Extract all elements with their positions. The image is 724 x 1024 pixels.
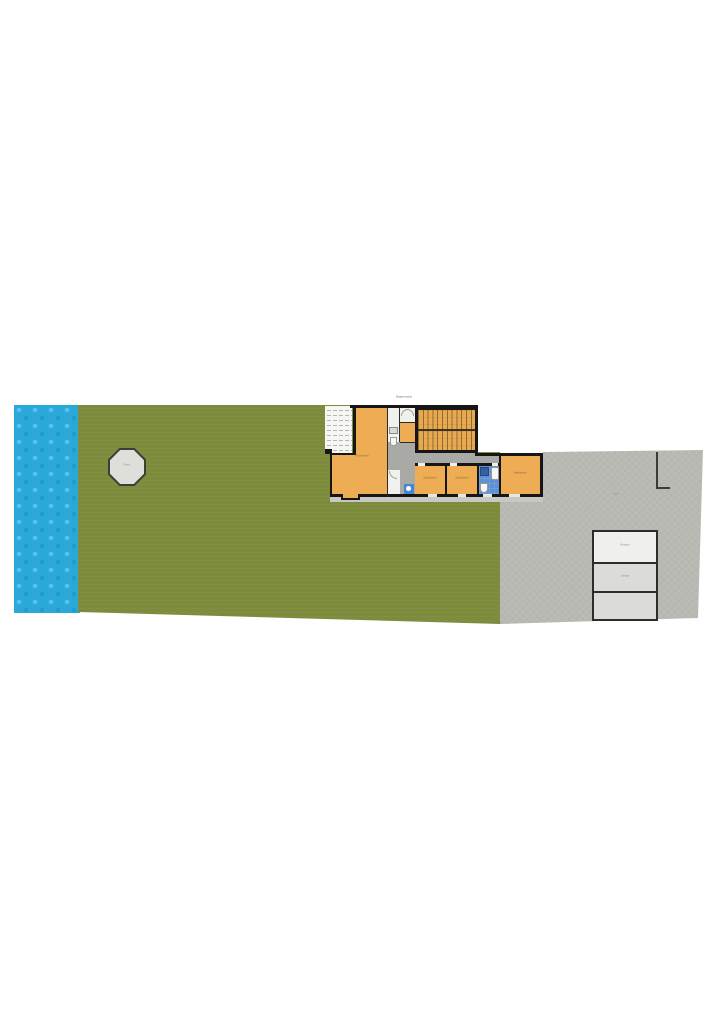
walkway bbox=[330, 497, 543, 502]
toilet-icon bbox=[390, 437, 397, 446]
window-bathroom bbox=[483, 494, 492, 497]
bath-toilet-icon bbox=[480, 483, 488, 493]
outbuilding-room-3 bbox=[594, 593, 656, 619]
plan-title-label: Begane grond bbox=[391, 395, 416, 398]
wall-bed1-bed2 bbox=[445, 466, 447, 494]
patio-tiles bbox=[325, 406, 352, 453]
veranda-band-top bbox=[418, 408, 475, 410]
living-room-label: Woonkamer bbox=[349, 454, 374, 457]
fence-line-vertical bbox=[656, 452, 658, 489]
veranda-band-middle bbox=[418, 429, 475, 431]
shower-icon bbox=[480, 467, 489, 476]
door-gap-bathroom bbox=[492, 463, 498, 466]
fence-line-horizontal bbox=[656, 487, 670, 489]
wall-living-corridor bbox=[387, 408, 388, 497]
washbasin-icon bbox=[389, 427, 398, 434]
wall-right-outer bbox=[540, 453, 543, 497]
wall-kitchen-top bbox=[400, 422, 415, 423]
water-area bbox=[14, 405, 80, 613]
bedroom-1 bbox=[415, 466, 445, 494]
site-plan: Begane grond Woonkamer Slaapkamer Slaapk… bbox=[0, 0, 724, 1024]
bathtub-icon bbox=[491, 467, 499, 480]
window-bedroom1 bbox=[428, 494, 437, 497]
bedroom-3 bbox=[501, 456, 540, 494]
bedroom3-label: Slaapkamer bbox=[507, 471, 532, 474]
outbuilding-room-1 bbox=[594, 532, 656, 562]
wall-kitchen-bottom bbox=[400, 442, 415, 443]
wall-veranda-right bbox=[475, 408, 478, 453]
veranda-band-bottom bbox=[418, 450, 475, 453]
wall-corridor-kitchen bbox=[399, 408, 400, 442]
kitchen-room bbox=[400, 423, 415, 442]
outbuilding-room1-label: Berging bbox=[612, 543, 637, 546]
window-bedroom2 bbox=[458, 494, 466, 497]
wall-wing-top bbox=[475, 453, 543, 456]
wall-bath-bed3 bbox=[499, 456, 501, 494]
bedroom1-label: Slaapkamer bbox=[417, 476, 442, 479]
gazebo bbox=[110, 450, 144, 484]
wall-left-lower bbox=[330, 453, 332, 497]
bedroom-2 bbox=[447, 466, 477, 494]
door-gap-bedroom2 bbox=[450, 463, 457, 466]
gazebo-label: Prieel bbox=[114, 463, 139, 466]
window-bedroom3 bbox=[509, 494, 520, 497]
driveway-label: Oprit bbox=[603, 492, 628, 495]
living-room-extension bbox=[332, 455, 356, 497]
wall-left-upper bbox=[353, 408, 356, 453]
wall-bed2-bath bbox=[477, 466, 479, 494]
living-room bbox=[356, 408, 387, 497]
wall-bedrooms-top bbox=[415, 463, 501, 466]
bay-protrusion bbox=[343, 494, 358, 498]
bedroom2-label: Slaapkamer bbox=[449, 476, 474, 479]
outbuilding-room2-label: Garage bbox=[612, 574, 637, 577]
shower-drain-icon bbox=[406, 486, 411, 491]
door-gap-bedroom1 bbox=[418, 463, 425, 466]
